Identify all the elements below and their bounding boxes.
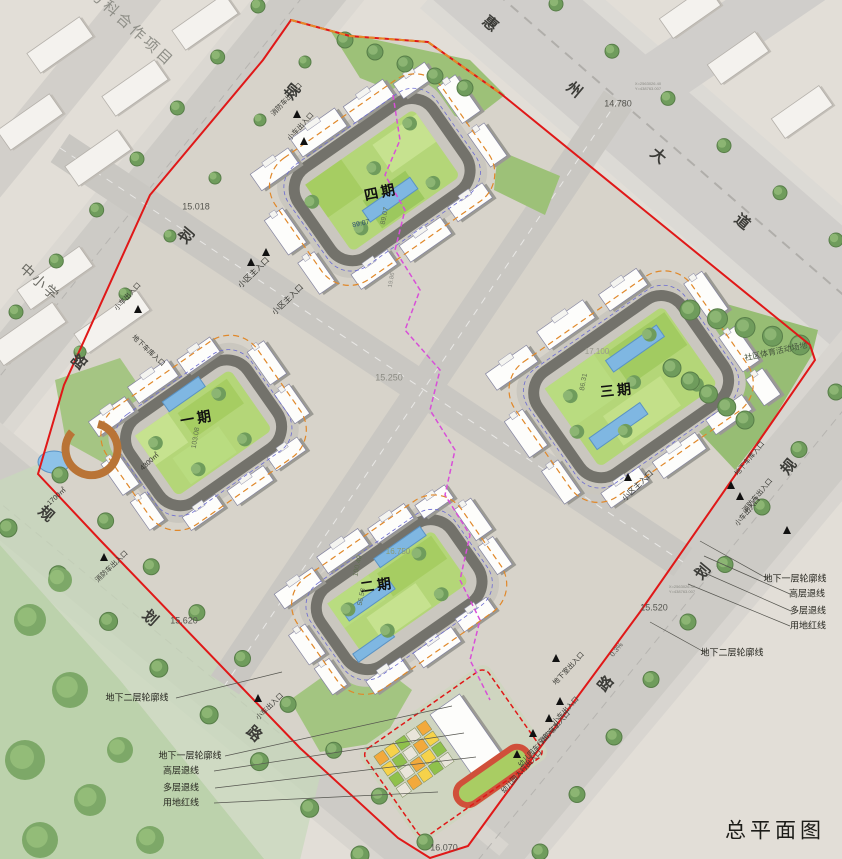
tree — [701, 387, 712, 398]
park-tree — [109, 739, 125, 755]
tree — [398, 57, 408, 67]
tree — [665, 361, 676, 372]
tree — [682, 302, 694, 314]
tree — [202, 707, 213, 718]
tree — [254, 114, 261, 121]
park-tree — [10, 745, 34, 769]
tree — [209, 172, 216, 179]
tree — [774, 187, 782, 195]
tree — [353, 848, 364, 859]
drawing-title: 总平面图 — [725, 821, 825, 842]
coordinate-label-y: Y=438763.007 — [669, 590, 695, 594]
tree — [765, 328, 777, 340]
tree — [644, 673, 654, 683]
elevation-label: 14.780 — [604, 100, 632, 109]
tree — [99, 514, 109, 524]
park-tree — [17, 607, 36, 626]
tree — [458, 81, 468, 91]
legend-highrise-left: 高层退线 — [163, 767, 199, 776]
tree — [662, 92, 670, 100]
tree — [302, 801, 313, 812]
tree — [53, 468, 63, 478]
tree — [131, 153, 139, 161]
legend-redline-right: 用地红线 — [790, 622, 826, 631]
elevation-label: 15.018 — [182, 203, 210, 212]
park-tree — [139, 829, 156, 846]
legend-multi-left: 多层退线 — [163, 784, 199, 793]
tree — [710, 311, 722, 323]
tree — [299, 56, 306, 63]
legend-highrise-right: 高层退线 — [789, 590, 825, 599]
elevation-label: 15.620 — [170, 617, 198, 626]
tree — [252, 754, 263, 765]
site-plan-canvas: 交万科合作项目 惠 州 大 道 规 划 路 规 划 路 规 划 路 中小学 社区… — [0, 0, 842, 859]
tree — [792, 443, 802, 453]
tree — [829, 385, 839, 395]
legend-underground2-left: 地下二层轮廓线 — [105, 694, 168, 703]
tree — [719, 400, 730, 411]
building — [771, 86, 832, 139]
tree — [151, 661, 162, 672]
park-tree — [26, 826, 48, 848]
tree — [373, 789, 383, 799]
tree — [1, 521, 12, 532]
tree — [418, 835, 428, 845]
legend-underground2-right: 地下二层轮廓线 — [700, 649, 763, 658]
legend-underground1-left: 地下一层轮廓线 — [158, 752, 221, 761]
tree — [570, 788, 580, 798]
elevation-label: 16.070 — [430, 844, 458, 853]
tree — [190, 606, 200, 616]
elevation-label: 15.520 — [640, 604, 668, 613]
tree — [738, 413, 749, 424]
tree — [368, 45, 378, 55]
tree — [428, 69, 438, 79]
tree — [718, 139, 726, 147]
elevation-label: 17.100 — [585, 348, 609, 356]
context-building — [102, 59, 171, 118]
legend-multi-right: 多层退线 — [790, 607, 826, 616]
tree — [252, 0, 260, 8]
legend-underground1-right: 地下一层轮廓线 — [763, 575, 826, 584]
tree — [606, 45, 614, 53]
park-tree — [77, 787, 96, 806]
park-tree — [50, 570, 64, 584]
coordinate-label-y: Y=438763.007 — [635, 87, 661, 91]
tree — [50, 255, 58, 263]
tree — [164, 230, 171, 237]
tree — [211, 51, 219, 59]
tree — [533, 845, 543, 855]
legend-redline-left: 用地红线 — [163, 799, 199, 808]
tree — [10, 306, 18, 314]
park-tree — [56, 676, 78, 698]
context-building — [771, 84, 835, 140]
tree — [236, 652, 246, 662]
tree — [737, 320, 749, 332]
tree — [90, 204, 98, 212]
tree — [607, 730, 617, 740]
tree — [830, 234, 838, 242]
tree — [681, 615, 691, 625]
site-plan-svg — [0, 0, 842, 859]
elevation-label: 16.750 — [386, 548, 410, 556]
phase-3-label: 三期 — [599, 381, 634, 398]
tree — [144, 560, 154, 570]
tree — [327, 743, 337, 753]
tree — [101, 614, 112, 625]
tree — [683, 374, 694, 385]
tree — [171, 102, 179, 110]
elevation-label: 15.250 — [375, 374, 403, 383]
